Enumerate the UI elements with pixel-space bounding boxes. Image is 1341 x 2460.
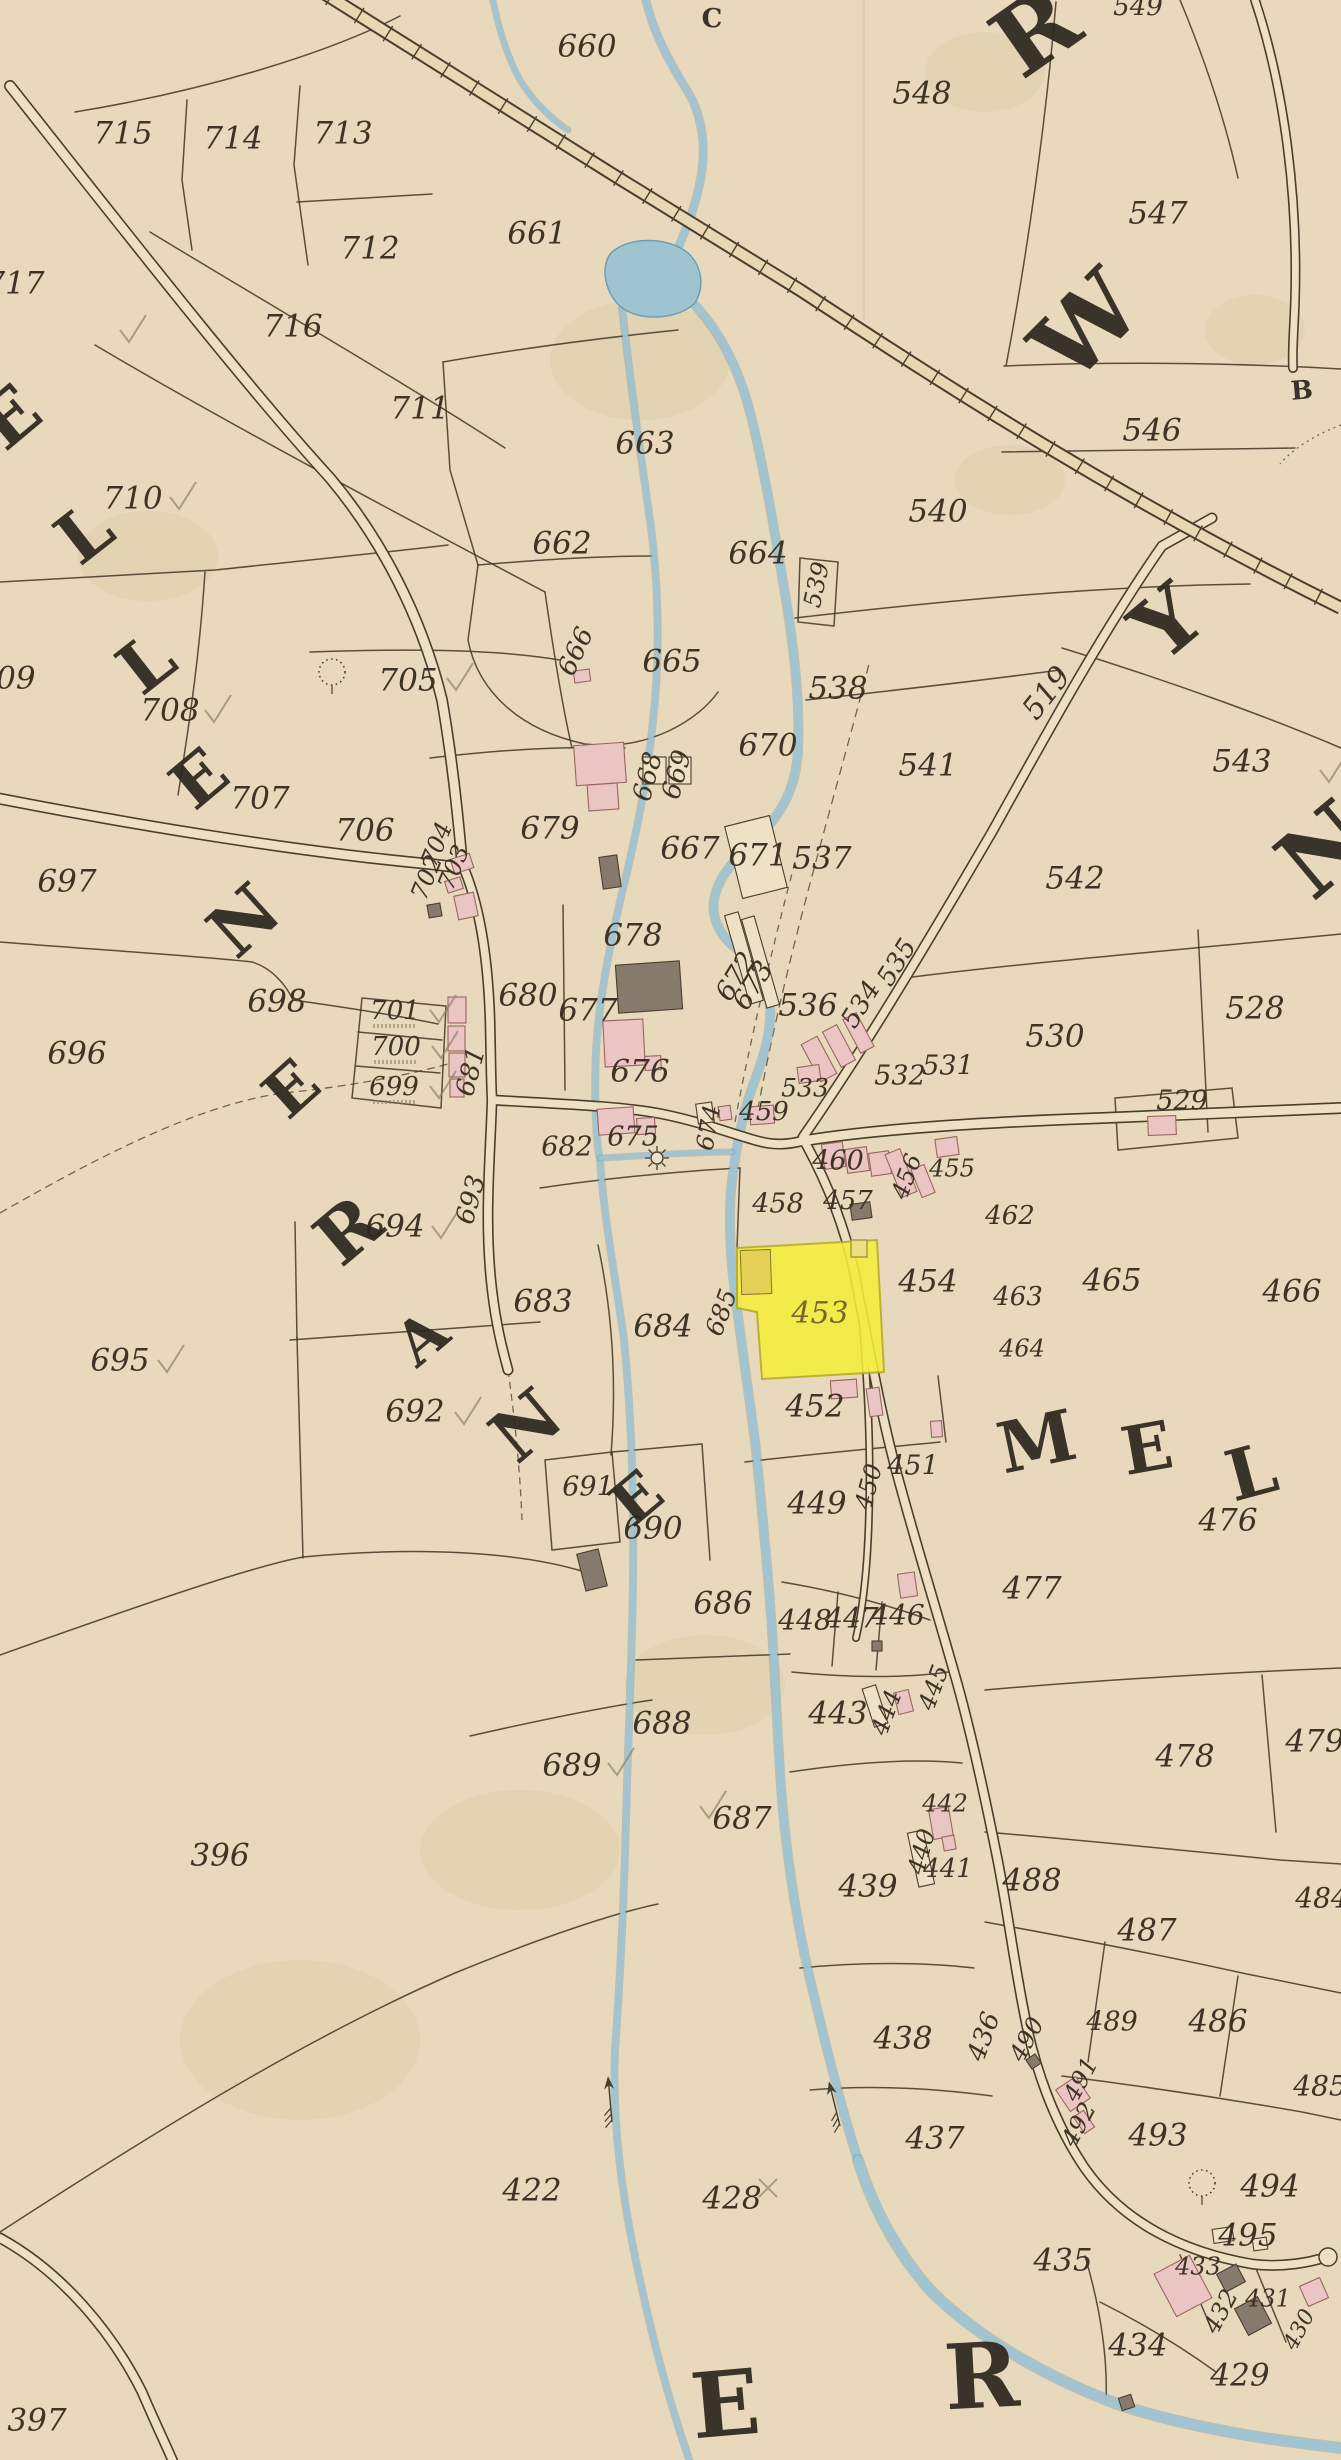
- building: [587, 783, 619, 811]
- parcel-label-448: 448: [777, 1604, 831, 1637]
- parcel-label-485: 485: [1292, 2070, 1341, 2103]
- parcel-label-435: 435: [1032, 2243, 1092, 2279]
- parcel-label-687: 687: [712, 1801, 771, 1837]
- building: [448, 997, 466, 1023]
- parcel-label-712: 712: [340, 231, 399, 267]
- parcel-label-530: 530: [1025, 1019, 1084, 1055]
- building: [740, 1249, 772, 1294]
- parcel-label-661: 661: [507, 216, 566, 252]
- parcel-label-437: 437: [904, 2121, 964, 2157]
- parcel-label-660: 660: [557, 29, 616, 65]
- parcel-label-455: 455: [928, 1155, 975, 1183]
- parcel-label-477: 477: [1001, 1571, 1061, 1607]
- parcel-label-713: 713: [313, 116, 372, 152]
- parcel-label-543: 543: [1212, 744, 1271, 780]
- parcel-label-484: 484: [1294, 1882, 1341, 1915]
- parcel-label-397: 397: [7, 2403, 66, 2439]
- parcel-label-495: 495: [1217, 2218, 1277, 2254]
- parcel-label-700: 700: [371, 1032, 421, 1062]
- parcel-label-528: 528: [1225, 991, 1284, 1027]
- parcel-label-665: 665: [642, 644, 701, 680]
- parcel-label-457: 457: [822, 1186, 873, 1216]
- parcel-label-696: 696: [47, 1036, 106, 1072]
- parcel-label-677: 677: [558, 993, 617, 1029]
- parcel-label-538: 538: [808, 671, 867, 707]
- parcel-label-458: 458: [751, 1189, 804, 1220]
- parcel-label-717: 717: [0, 266, 45, 302]
- building: [454, 892, 479, 920]
- building: [897, 1572, 917, 1598]
- parcel-label-698: 698: [247, 984, 306, 1020]
- parcel-label-716: 716: [263, 309, 322, 345]
- building: [851, 1240, 867, 1257]
- parcel-label-678: 678: [603, 918, 662, 954]
- index-letter-E: E: [687, 2349, 765, 2460]
- road-end-loop: [1319, 2248, 1337, 2266]
- parcel-label-707: 707: [230, 781, 289, 817]
- parcel-label-537: 537: [792, 841, 851, 877]
- parcel-label-396: 396: [190, 1838, 249, 1874]
- parcel-label-699: 699: [369, 1072, 419, 1102]
- index-letter-R: R: [941, 2322, 1022, 2432]
- parcel-label-487: 487: [1116, 1913, 1176, 1949]
- parcel-label-689: 689: [542, 1748, 601, 1784]
- parcel-label-692: 692: [385, 1394, 444, 1430]
- parcel-label-478: 478: [1154, 1739, 1214, 1775]
- index-letter-C: C: [702, 4, 723, 34]
- parcel-label-540: 540: [908, 494, 967, 530]
- parcel-label-682: 682: [541, 1132, 593, 1163]
- parcel-label-463: 463: [992, 1282, 1043, 1312]
- parcel-label-532: 532: [874, 1061, 926, 1092]
- building: [599, 855, 621, 889]
- parcel-label-663: 663: [615, 426, 674, 462]
- parcel-label-449: 449: [786, 1486, 846, 1522]
- map-canvas: 7157147137127177167116606616636626646656…: [0, 0, 1341, 2460]
- parcel-label-479: 479: [1284, 1724, 1341, 1760]
- parcel-label-709: 709: [0, 661, 36, 697]
- parcel-label-452: 452: [784, 1389, 844, 1425]
- parcel-label-489: 489: [1085, 2007, 1138, 2038]
- parcel-label-429: 429: [1209, 2358, 1269, 2394]
- parcel-label-439: 439: [837, 1869, 897, 1905]
- parcel-label-454: 454: [897, 1264, 957, 1300]
- parcel-label-546: 546: [1122, 413, 1181, 449]
- parcel-label-547: 547: [1128, 196, 1187, 232]
- parcel-label-536: 536: [778, 988, 837, 1024]
- parcel-label-676: 676: [610, 1054, 669, 1090]
- building: [427, 903, 442, 918]
- parcel-label-493: 493: [1127, 2118, 1187, 2154]
- parcel-label-459: 459: [738, 1097, 789, 1127]
- parcel-label-460: 460: [811, 1146, 864, 1177]
- parcel-label-715: 715: [93, 116, 152, 152]
- parcel-label-529: 529: [1156, 1086, 1208, 1117]
- parcel-label-465: 465: [1081, 1263, 1141, 1299]
- parcel-label-443: 443: [807, 1696, 867, 1732]
- parcel-label-706: 706: [335, 813, 394, 849]
- parcel-label-662: 662: [532, 526, 591, 562]
- parcel-label-684: 684: [633, 1309, 692, 1345]
- building: [615, 961, 682, 1013]
- parcel-label-697: 697: [37, 864, 96, 900]
- parcel-label-541: 541: [898, 748, 957, 784]
- parcel-label-466: 466: [1261, 1274, 1321, 1310]
- parcel-label-711: 711: [390, 391, 449, 427]
- index-letter-B: B: [1290, 375, 1315, 407]
- parcel-label-688: 688: [632, 1706, 691, 1742]
- paper-stain: [180, 1960, 420, 2120]
- parcel-label-701: 701: [370, 996, 420, 1026]
- parcel-label-442: 442: [921, 1790, 968, 1818]
- building: [574, 742, 627, 785]
- parcel-label-433: 433: [1174, 2253, 1221, 2281]
- parcel-label-664: 664: [728, 536, 787, 572]
- parcel-label-680: 680: [498, 978, 557, 1014]
- parcel-label-548: 548: [892, 76, 951, 112]
- building: [930, 1421, 942, 1438]
- parcel-label-451: 451: [886, 1451, 939, 1482]
- parcel-label-488: 488: [1001, 1863, 1061, 1899]
- parcel-label-531: 531: [922, 1051, 974, 1082]
- cadastral-map-page: 7157147137127177167116606616636626646656…: [0, 0, 1341, 2460]
- parcel-label-428: 428: [701, 2181, 761, 2217]
- parcel-label-549: 549: [1113, 0, 1163, 22]
- parcel-label-464: 464: [998, 1335, 1045, 1363]
- well-symbol: [651, 1152, 663, 1164]
- building: [942, 1835, 956, 1851]
- building: [872, 1641, 882, 1651]
- parcel-label-446: 446: [870, 1599, 924, 1632]
- parcel-label-486: 486: [1187, 2004, 1247, 2040]
- parcel-label-679: 679: [520, 811, 579, 847]
- parcel-label-434: 434: [1107, 2328, 1167, 2364]
- parcel-label-462: 462: [984, 1201, 1035, 1231]
- parcel-label-695: 695: [90, 1343, 149, 1379]
- paper-stain: [420, 1790, 620, 1910]
- parcel-label-431: 431: [1244, 2285, 1291, 2313]
- parcel-label-686: 686: [693, 1586, 752, 1622]
- parcel-label-453: 453: [790, 1296, 848, 1331]
- building: [1148, 1116, 1177, 1136]
- parcel-label-671: 671: [728, 838, 787, 874]
- parcel-label-670: 670: [738, 728, 797, 764]
- parcel-label-675: 675: [607, 1122, 659, 1153]
- parcel-label-422: 422: [501, 2173, 561, 2209]
- parcel-label-714: 714: [203, 121, 262, 157]
- parcel-label-494: 494: [1239, 2169, 1299, 2205]
- parcel-label-710: 710: [103, 481, 162, 517]
- paper-crease: [862, 0, 865, 320]
- parcel-label-683: 683: [513, 1284, 572, 1320]
- pond: [605, 240, 701, 317]
- parcel-label-705: 705: [378, 663, 437, 699]
- parcel-label-438: 438: [872, 2021, 932, 2057]
- parcel-label-667: 667: [660, 831, 719, 867]
- parcel-label-542: 542: [1045, 861, 1104, 897]
